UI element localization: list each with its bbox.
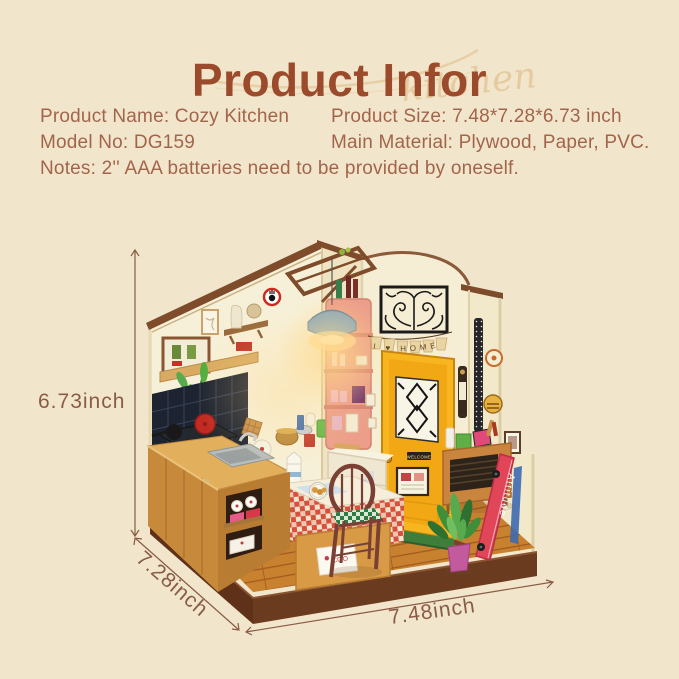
miniature-kitchen-photo: I ♥ HOME WELCOME (146, 240, 537, 624)
page-title: Product Infor (0, 53, 679, 107)
model-no-line: Model No: DG159 (40, 130, 289, 156)
green-bottle (336, 280, 342, 299)
welcome-plate-text: WELCOME (407, 454, 431, 459)
height-dimension-label: 6.73inch (38, 390, 125, 413)
wall-note (366, 394, 375, 406)
wine-bottle (346, 276, 351, 298)
main-material-line: Main Material: Plywood, Paper, PVC. (331, 130, 650, 156)
width-dimension-label: 7.48inch (387, 594, 477, 629)
notes-line: Notes: 2'' AAA batteries need to be prov… (40, 156, 519, 182)
black-pan (166, 424, 182, 440)
small-wall-frame (202, 310, 218, 334)
pink-pot (448, 544, 470, 572)
info-right-column: Product Size: 7.48*7.28*6.73 inch Main M… (331, 104, 650, 156)
product-name-line: Product Name: Cozy Kitchen (40, 104, 289, 130)
door-notice (397, 468, 428, 495)
plate (247, 304, 261, 318)
product-size-line: Product Size: 7.48*7.28*6.73 inch (331, 104, 650, 130)
product-info-sheet: Product Infor Product Name: Cozy Kitchen… (0, 0, 679, 679)
wine-bottle (353, 279, 358, 298)
white-bottle (446, 428, 454, 448)
wall-note (368, 418, 376, 428)
info-left-column: Product Name: Cozy Kitchen Model No: DG1… (40, 104, 289, 156)
